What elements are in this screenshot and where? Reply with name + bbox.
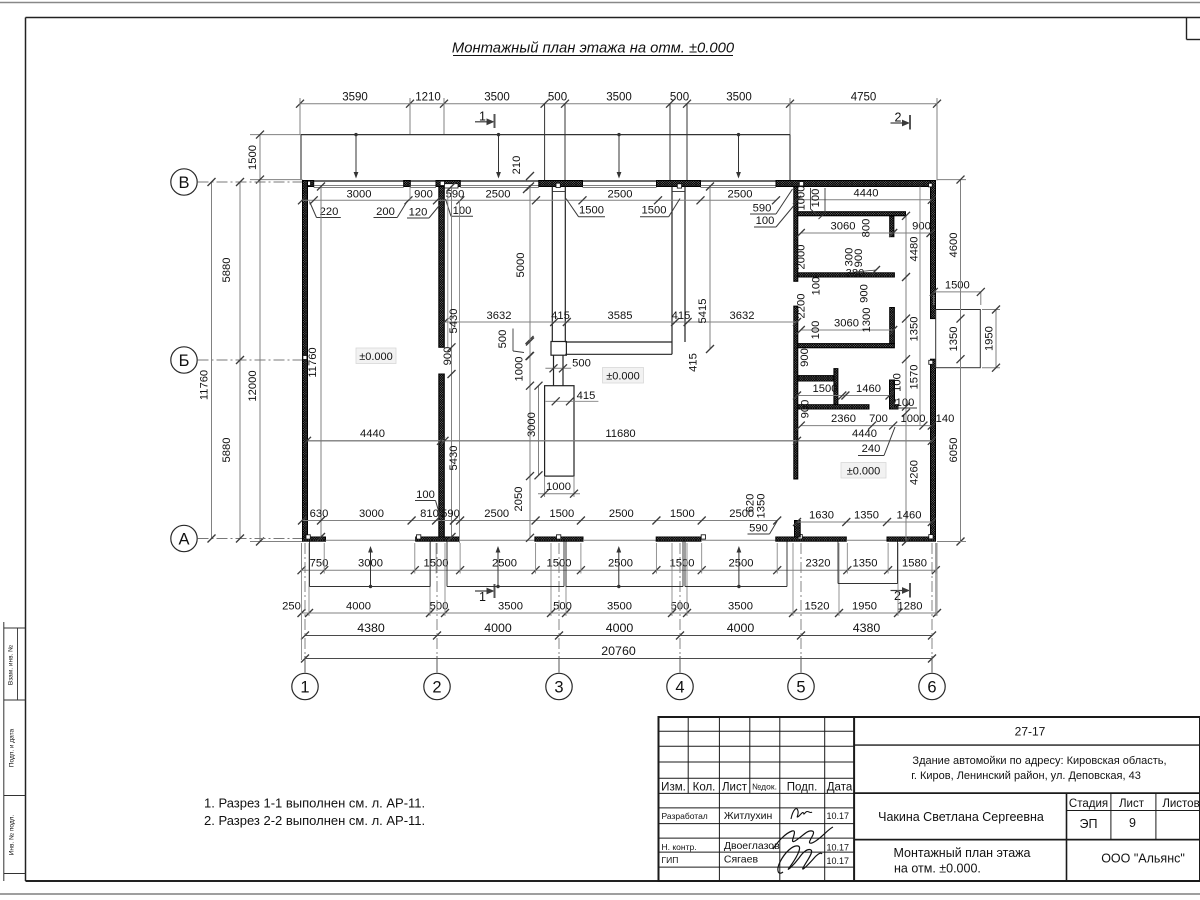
svg-text:1: 1: [300, 678, 309, 696]
svg-text:2500: 2500: [484, 508, 509, 520]
svg-text:3000: 3000: [359, 508, 384, 520]
svg-text:1520: 1520: [805, 600, 830, 612]
svg-text:900: 900: [442, 347, 454, 366]
svg-text:100: 100: [896, 397, 915, 409]
svg-text:±0.000: ±0.000: [359, 351, 393, 363]
svg-text:590: 590: [749, 523, 768, 535]
svg-text:810: 810: [420, 508, 439, 520]
svg-text:2500: 2500: [609, 508, 634, 520]
svg-text:500: 500: [497, 330, 509, 349]
svg-text:±0.000: ±0.000: [847, 466, 881, 478]
svg-text:500: 500: [430, 600, 449, 612]
svg-text:900: 900: [853, 249, 865, 268]
svg-text:500: 500: [548, 91, 567, 103]
svg-text:2: 2: [432, 678, 441, 696]
svg-text:500: 500: [670, 91, 689, 103]
svg-text:10.17: 10.17: [827, 843, 850, 853]
svg-text:750: 750: [310, 558, 329, 570]
svg-text:Сягаев: Сягаев: [724, 854, 759, 866]
svg-text:5430: 5430: [448, 309, 460, 334]
svg-text:250: 250: [282, 600, 301, 612]
svg-text:4440: 4440: [360, 428, 385, 440]
svg-text:Разработал: Разработал: [662, 811, 708, 821]
svg-text:Дата: Дата: [827, 782, 853, 794]
svg-text:3585: 3585: [608, 310, 633, 322]
svg-text:4000: 4000: [346, 600, 371, 612]
svg-text:3632: 3632: [730, 310, 755, 322]
svg-text:11760: 11760: [199, 370, 211, 400]
svg-text:5000: 5000: [515, 253, 527, 278]
svg-text:4750: 4750: [851, 91, 877, 103]
svg-text:Житлухин: Житлухин: [724, 810, 773, 822]
svg-text:Здание автомойки по адресу: Ки: Здание автомойки по адресу: Кировская об…: [912, 755, 1166, 767]
svg-text:3632: 3632: [487, 310, 512, 322]
svg-text:1950: 1950: [852, 600, 877, 612]
svg-text:1000: 1000: [514, 357, 526, 382]
svg-text:Стадия: Стадия: [1069, 798, 1108, 810]
svg-text:3060: 3060: [831, 221, 856, 233]
svg-text:ООО "Альянс": ООО "Альянс": [1101, 852, 1185, 866]
svg-text:4440: 4440: [852, 428, 877, 440]
svg-text:Изм.: Изм.: [661, 782, 686, 794]
svg-text:2360: 2360: [831, 413, 856, 425]
svg-text:9: 9: [1129, 816, 1136, 830]
svg-text:ГИП: ГИП: [662, 855, 679, 865]
svg-text:100: 100: [810, 321, 822, 340]
svg-text:2050: 2050: [513, 487, 525, 512]
svg-text:1000: 1000: [796, 186, 808, 211]
svg-text:3500: 3500: [728, 600, 753, 612]
svg-text:100: 100: [811, 277, 823, 296]
svg-text:1500: 1500: [549, 508, 574, 520]
svg-text:500: 500: [572, 358, 591, 370]
svg-text:800: 800: [861, 219, 873, 238]
svg-text:1350: 1350: [909, 317, 921, 342]
svg-text:1500: 1500: [642, 205, 667, 217]
svg-text:200: 200: [376, 206, 395, 218]
svg-text:Подп.: Подп.: [787, 782, 818, 794]
svg-text:3500: 3500: [726, 91, 752, 103]
svg-text:2000: 2000: [796, 245, 808, 270]
svg-text:1500: 1500: [247, 145, 259, 170]
svg-text:4480: 4480: [909, 237, 921, 262]
svg-text:1000: 1000: [901, 413, 926, 425]
svg-text:1350: 1350: [853, 558, 878, 570]
svg-text:2500: 2500: [729, 508, 754, 520]
svg-text:ЭП: ЭП: [1080, 817, 1098, 831]
svg-text:3590: 3590: [342, 91, 368, 103]
svg-text:100: 100: [756, 215, 775, 227]
svg-text:3000: 3000: [347, 189, 372, 201]
svg-text:Б: Б: [179, 352, 190, 370]
svg-text:380: 380: [846, 268, 865, 280]
svg-text:2. Разрез 2-2 выполнен см. л.: 2. Разрез 2-2 выполнен см. л. АР-11.: [204, 813, 425, 828]
svg-text:2500: 2500: [608, 558, 633, 570]
svg-text:1500: 1500: [945, 279, 970, 291]
svg-text:100: 100: [810, 189, 822, 208]
svg-text:5415: 5415: [697, 299, 709, 324]
svg-text:4: 4: [675, 678, 684, 696]
svg-text:140: 140: [936, 413, 955, 425]
svg-text:2500: 2500: [729, 558, 754, 570]
svg-text:Листов: Листов: [1162, 798, 1199, 810]
svg-text:1460: 1460: [897, 509, 922, 521]
svg-text:10.17: 10.17: [827, 856, 850, 866]
svg-text:900: 900: [800, 400, 812, 419]
svg-text:4260: 4260: [909, 460, 921, 485]
svg-text:1630: 1630: [809, 509, 834, 521]
svg-text:900: 900: [799, 348, 811, 367]
svg-text:415: 415: [672, 310, 691, 322]
svg-text:4440: 4440: [854, 187, 879, 199]
svg-text:Инв. № подл.: Инв. № подл.: [9, 815, 16, 856]
svg-text:2320: 2320: [806, 558, 831, 570]
svg-text:4380: 4380: [853, 621, 881, 635]
svg-text:5880: 5880: [221, 438, 233, 463]
svg-text:100: 100: [892, 373, 904, 392]
svg-text:3500: 3500: [606, 91, 632, 103]
svg-text:415: 415: [577, 390, 596, 402]
svg-text:900: 900: [912, 221, 931, 233]
svg-text:1300: 1300: [861, 308, 873, 333]
svg-text:Монтажный план этажа: Монтажный план этажа: [894, 846, 1031, 860]
svg-text:210: 210: [511, 156, 523, 175]
svg-text:100: 100: [416, 489, 435, 501]
svg-text:2500: 2500: [728, 189, 753, 201]
svg-text:4600: 4600: [948, 233, 960, 258]
svg-text:1460: 1460: [856, 383, 881, 395]
svg-text:1350: 1350: [756, 494, 768, 519]
svg-text:1350: 1350: [854, 509, 879, 521]
svg-text:1: 1: [479, 590, 486, 604]
svg-text:500: 500: [553, 600, 572, 612]
svg-text:630: 630: [310, 508, 329, 520]
svg-text:3000: 3000: [526, 412, 538, 437]
svg-text:240: 240: [862, 443, 881, 455]
svg-text:Взам. инв. №: Взам. инв. №: [8, 645, 15, 685]
svg-text:3500: 3500: [607, 600, 632, 612]
svg-text:900: 900: [859, 284, 871, 303]
svg-text:120: 120: [409, 207, 428, 219]
svg-text:1500: 1500: [670, 508, 695, 520]
svg-text:6050: 6050: [948, 438, 960, 463]
svg-text:1. Разрез 1-1 выполнен см. л.: 1. Разрез 1-1 выполнен см. л. АР-11.: [204, 796, 425, 811]
svg-text:2500: 2500: [486, 189, 511, 201]
svg-text:3500: 3500: [484, 91, 510, 103]
svg-text:Н. контр.: Н. контр.: [662, 842, 697, 852]
svg-text:5: 5: [796, 678, 805, 696]
svg-text:1580: 1580: [902, 558, 927, 570]
svg-text:3500: 3500: [498, 600, 523, 612]
svg-text:Кол.: Кол.: [693, 782, 716, 794]
svg-text:20760: 20760: [601, 644, 636, 658]
svg-text:6: 6: [927, 678, 936, 696]
svg-text:12000: 12000: [247, 370, 259, 401]
svg-text:Подп. и дата: Подп. и дата: [9, 728, 16, 767]
svg-text:Чакина Светлана Сергеевна: Чакина Светлана Сергеевна: [878, 810, 1044, 824]
svg-text:2500: 2500: [608, 189, 633, 201]
svg-text:на отм. ±0.000.: на отм. ±0.000.: [894, 862, 981, 876]
svg-text:900: 900: [414, 189, 433, 201]
svg-text:1500: 1500: [813, 383, 838, 395]
svg-text:Монтажный план этажа на отм. ±: Монтажный план этажа на отм. ±0.000: [452, 41, 735, 57]
svg-text:5880: 5880: [221, 258, 233, 283]
svg-text:415: 415: [688, 353, 700, 372]
svg-text:590: 590: [753, 203, 772, 215]
svg-text:Двоеглазов: Двоеглазов: [724, 840, 780, 852]
svg-text:700: 700: [869, 413, 888, 425]
svg-text:4000: 4000: [727, 621, 755, 635]
svg-text:3: 3: [554, 678, 563, 696]
svg-text:11680: 11680: [605, 428, 635, 440]
svg-text:100: 100: [453, 205, 472, 217]
svg-text:3060: 3060: [834, 318, 859, 330]
svg-text:1350: 1350: [948, 327, 960, 352]
svg-text:1210: 1210: [415, 91, 441, 103]
svg-text:1570: 1570: [909, 365, 921, 390]
svg-text:г. Киров, Ленинский район, ул.: г. Киров, Ленинский район, ул. Деповская…: [911, 770, 1141, 782]
svg-text:11760: 11760: [307, 347, 319, 377]
svg-text:Лист: Лист: [722, 782, 748, 794]
svg-text:10.17: 10.17: [827, 811, 850, 821]
svg-text:27-17: 27-17: [1015, 725, 1046, 739]
svg-text:4000: 4000: [606, 621, 634, 635]
svg-text:1500: 1500: [579, 205, 604, 217]
svg-text:Лист: Лист: [1119, 798, 1145, 810]
svg-text:2500: 2500: [492, 558, 517, 570]
svg-text:415: 415: [551, 310, 570, 322]
svg-text:1950: 1950: [984, 326, 996, 351]
svg-text:1280: 1280: [898, 600, 923, 612]
svg-text:4380: 4380: [357, 621, 385, 635]
svg-text:1500: 1500: [670, 558, 695, 570]
svg-text:2200: 2200: [796, 294, 808, 319]
svg-text:5430: 5430: [448, 446, 460, 471]
svg-text:№док.: №док.: [752, 782, 777, 792]
svg-text:В: В: [178, 174, 189, 192]
svg-text:±0.000: ±0.000: [606, 371, 640, 383]
svg-text:4000: 4000: [484, 621, 512, 635]
svg-text:1000: 1000: [546, 481, 571, 493]
svg-text:220: 220: [320, 206, 339, 218]
svg-text:590: 590: [441, 508, 460, 520]
svg-text:А: А: [178, 530, 189, 548]
